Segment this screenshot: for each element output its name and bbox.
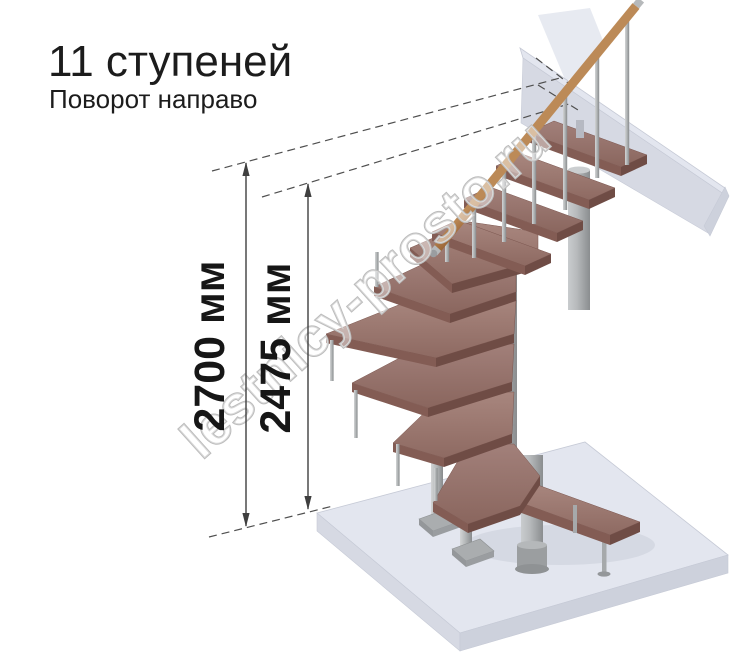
arrow-down-icon <box>304 496 311 510</box>
arrow-up-icon <box>304 183 311 197</box>
dimension-label-2700: 2700 мм <box>186 260 234 431</box>
foot-post-base <box>598 571 611 576</box>
staircase-diagram-page: lestnicy-prosto.ru 2700 мм 2475 мм 11 ст… <box>0 0 743 655</box>
baluster <box>625 17 629 165</box>
lower-column-base <box>515 564 549 574</box>
winder-rod <box>354 390 358 438</box>
step1-riser-rod <box>573 505 577 533</box>
page-title: 11 ступеней <box>48 37 292 86</box>
baluster <box>595 54 599 178</box>
handrail-top-cap <box>636 0 641 6</box>
winder-rod <box>396 444 400 486</box>
page-subtitle: Поворот направо <box>49 84 257 114</box>
arrow-down-icon <box>242 513 249 527</box>
dimension-label-2475: 2475 мм <box>252 262 300 433</box>
landing-bracket <box>576 120 584 138</box>
arrow-up-icon <box>242 162 249 176</box>
extension-line-bottom <box>209 506 333 537</box>
dimension-outer: 2700 мм <box>186 162 250 527</box>
staircase-illustration: lestnicy-prosto.ru 2700 мм 2475 мм 11 ст… <box>0 0 743 655</box>
baluster <box>563 93 567 210</box>
winder-rod <box>434 468 438 501</box>
lower-column-collar-top <box>517 541 547 549</box>
